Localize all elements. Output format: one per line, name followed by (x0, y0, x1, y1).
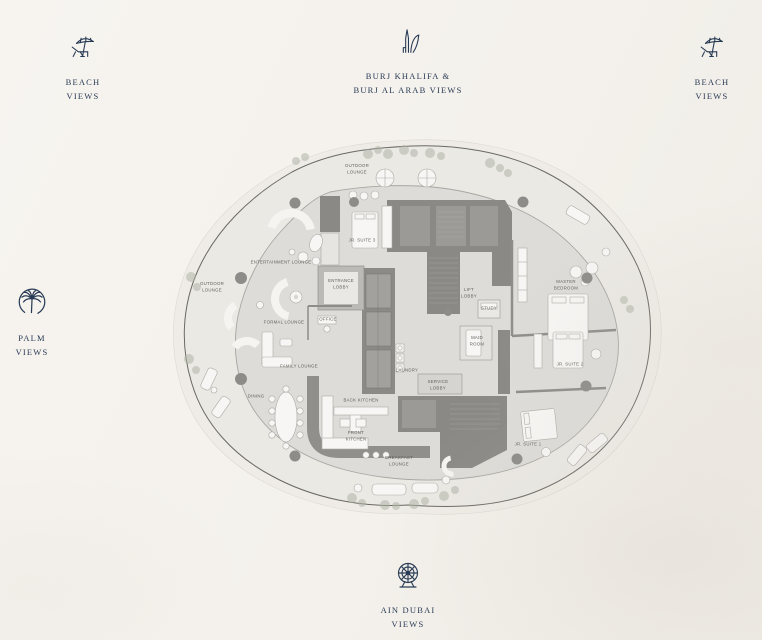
view-marker-burj-top-center: BURJ KHALIFA & BURJ AL ARAB VIEWS (328, 26, 488, 97)
floorplan-page: OUTDOOR LOUNGEJR. SUITE 3ENTERTAINMENT L… (0, 0, 762, 640)
room-label: JR. SUITE 2 (557, 362, 584, 368)
view-marker-beach-top-left: BEACH VIEWS (45, 34, 121, 103)
view-marker-label: BEACH VIEWS (66, 76, 101, 103)
beach-umbrella-icon (68, 34, 98, 69)
view-marker-label: AIN DUBAI VIEWS (381, 604, 436, 631)
room-label: SERVICE LOBBY (428, 380, 449, 393)
room-label: ENTERTAINMENT LOUNGE (251, 260, 312, 266)
view-marker-palm-left: PALM VIEWS (0, 286, 70, 359)
palm-jumeirah-icon (15, 286, 49, 325)
view-marker-label: PALM VIEWS (16, 332, 49, 359)
room-label: STUDY (481, 306, 497, 312)
view-marker-label: BURJ KHALIFA & BURJ AL ARAB VIEWS (353, 70, 462, 97)
room-label: BACK KITCHEN (343, 398, 378, 404)
room-label: ENTRANCE LOBBY (328, 279, 354, 292)
room-label: OUTDOOR LOUNGE (200, 282, 224, 295)
ferris-wheel-icon (392, 560, 424, 597)
view-marker-label: BEACH VIEWS (695, 76, 730, 103)
room-label: JR. SUITE 3 (349, 238, 376, 244)
room-label: FRONT KITCHEN (346, 431, 367, 444)
beach-umbrella-icon (697, 34, 727, 69)
room-label: MAID ROOM (470, 336, 484, 349)
room-label: LIFT LOBBY (461, 288, 477, 301)
room-label: JR. SUITE 1 (515, 442, 542, 448)
room-label: DINING (248, 394, 265, 400)
view-marker-beach-top-right: BEACH VIEWS (674, 34, 750, 103)
room-label: FORMAL LOUNGE (264, 320, 305, 326)
room-label: LAUNDRY (396, 368, 418, 374)
burj-towers-icon (393, 26, 423, 63)
room-label: OUTDOOR LOUNGE (345, 164, 369, 177)
room-label: FAMILY LOUNGE (280, 364, 318, 370)
room-label: OFFICE (319, 317, 336, 323)
view-marker-ain-dubai-bottom: AIN DUBAI VIEWS (358, 560, 458, 631)
room-label: BREAKFAST LOUNGE (385, 456, 413, 469)
room-label: MASTER BEDROOM (554, 280, 578, 293)
